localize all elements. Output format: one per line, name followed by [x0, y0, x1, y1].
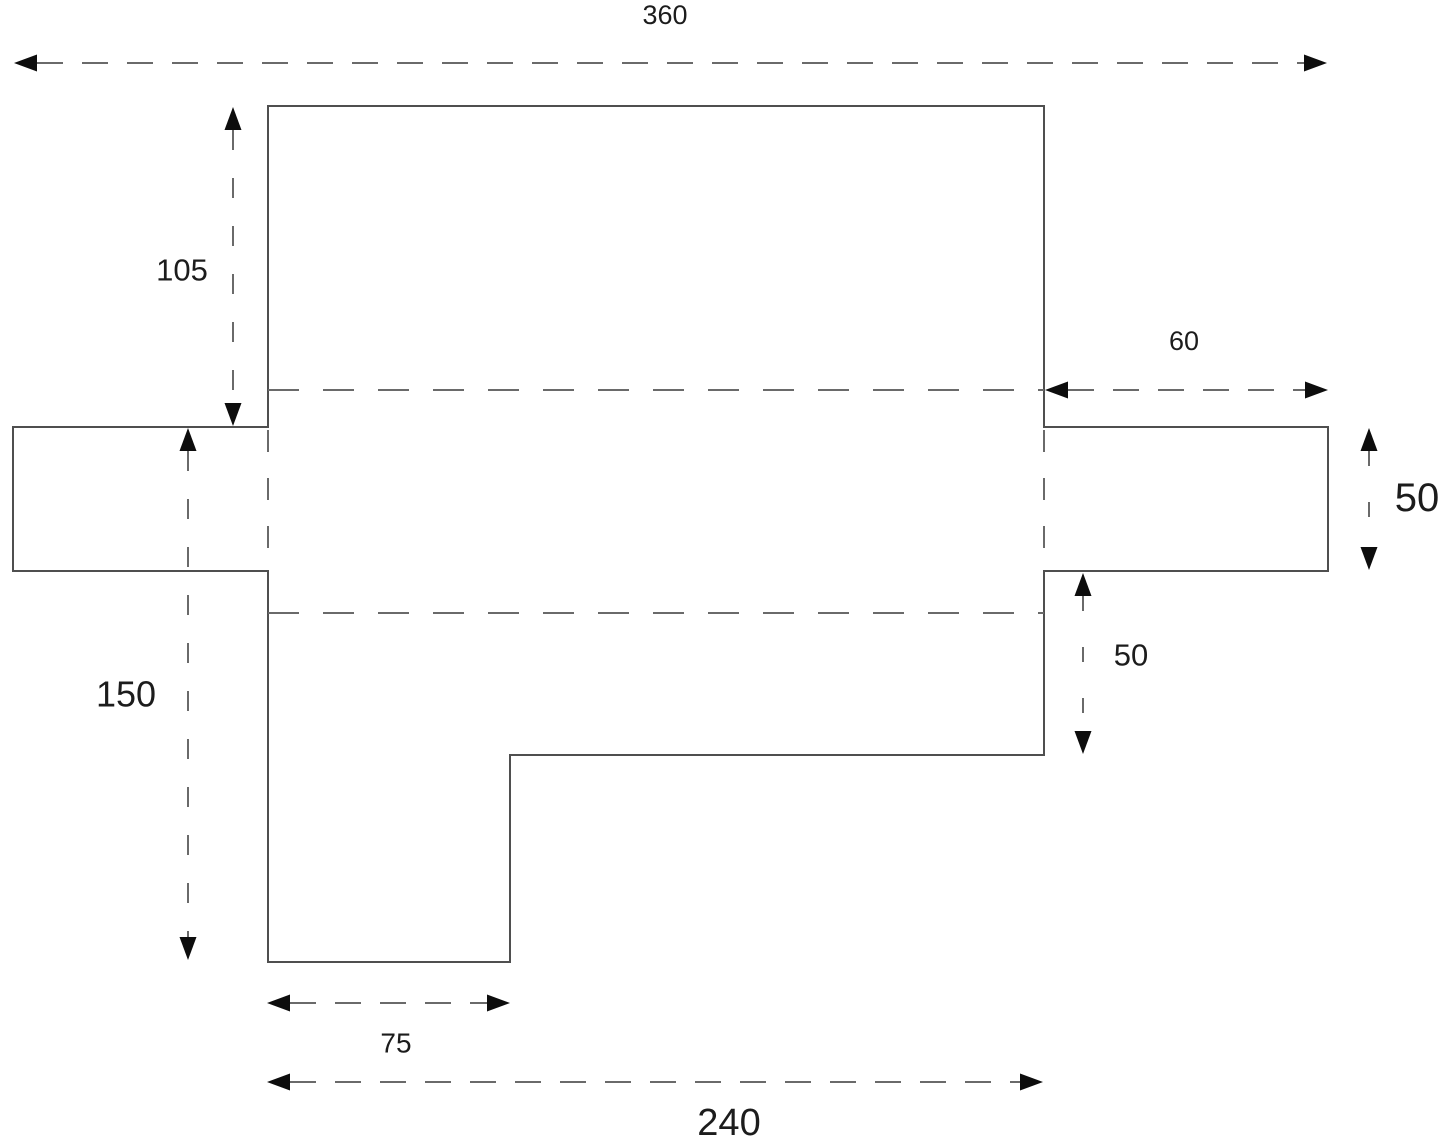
dimension-width-360: 360 — [14, 0, 1327, 72]
dimension-width-75: 75 — [267, 995, 510, 1059]
engineering-drawing-page: 36010515060505075240 — [0, 0, 1445, 1146]
dimension-height-150: 150 — [96, 428, 197, 960]
dimension-label-height-150: 150 — [96, 674, 156, 715]
dimension-label-height-50-right: 50 — [1395, 476, 1440, 520]
dimension-label-width-240: 240 — [697, 1102, 760, 1144]
stepped-plate-outline — [13, 106, 1328, 962]
dimension-label-height-50-inner: 50 — [1114, 638, 1148, 673]
dimension-height-105: 105 — [156, 107, 241, 426]
arrowhead-start-width-360 — [14, 55, 37, 72]
arrowhead-end-width-75 — [487, 995, 510, 1012]
arrowhead-start-height-50-right — [1361, 428, 1378, 451]
dimension-label-width-60: 60 — [1169, 326, 1199, 356]
arrowhead-start-width-60 — [1045, 382, 1068, 399]
arrowhead-start-height-50-inner — [1075, 573, 1092, 596]
dimension-label-height-105: 105 — [156, 253, 208, 288]
dimension-width-240: 240 — [267, 1074, 1043, 1145]
arrowhead-start-height-150 — [180, 428, 197, 451]
dimension-height-50-right: 50 — [1361, 428, 1440, 570]
arrowhead-end-height-50-right — [1361, 547, 1378, 570]
arrowhead-end-height-150 — [180, 937, 197, 960]
dimensioned-part-drawing: 36010515060505075240 — [0, 0, 1445, 1146]
arrowhead-end-width-360 — [1304, 55, 1327, 72]
arrowhead-start-height-105 — [225, 107, 242, 130]
dimension-width-60: 60 — [1045, 326, 1328, 399]
arrowhead-end-width-60 — [1305, 382, 1328, 399]
dimension-label-width-75: 75 — [380, 1028, 411, 1059]
dimension-height-50-inner: 50 — [1075, 573, 1149, 754]
arrowhead-end-height-50-inner — [1075, 731, 1092, 754]
arrowhead-end-width-240 — [1020, 1074, 1043, 1091]
arrowhead-start-width-240 — [267, 1074, 290, 1091]
arrowhead-start-width-75 — [267, 995, 290, 1012]
dimension-label-width-360: 360 — [642, 0, 687, 30]
arrowhead-end-height-105 — [225, 403, 242, 426]
